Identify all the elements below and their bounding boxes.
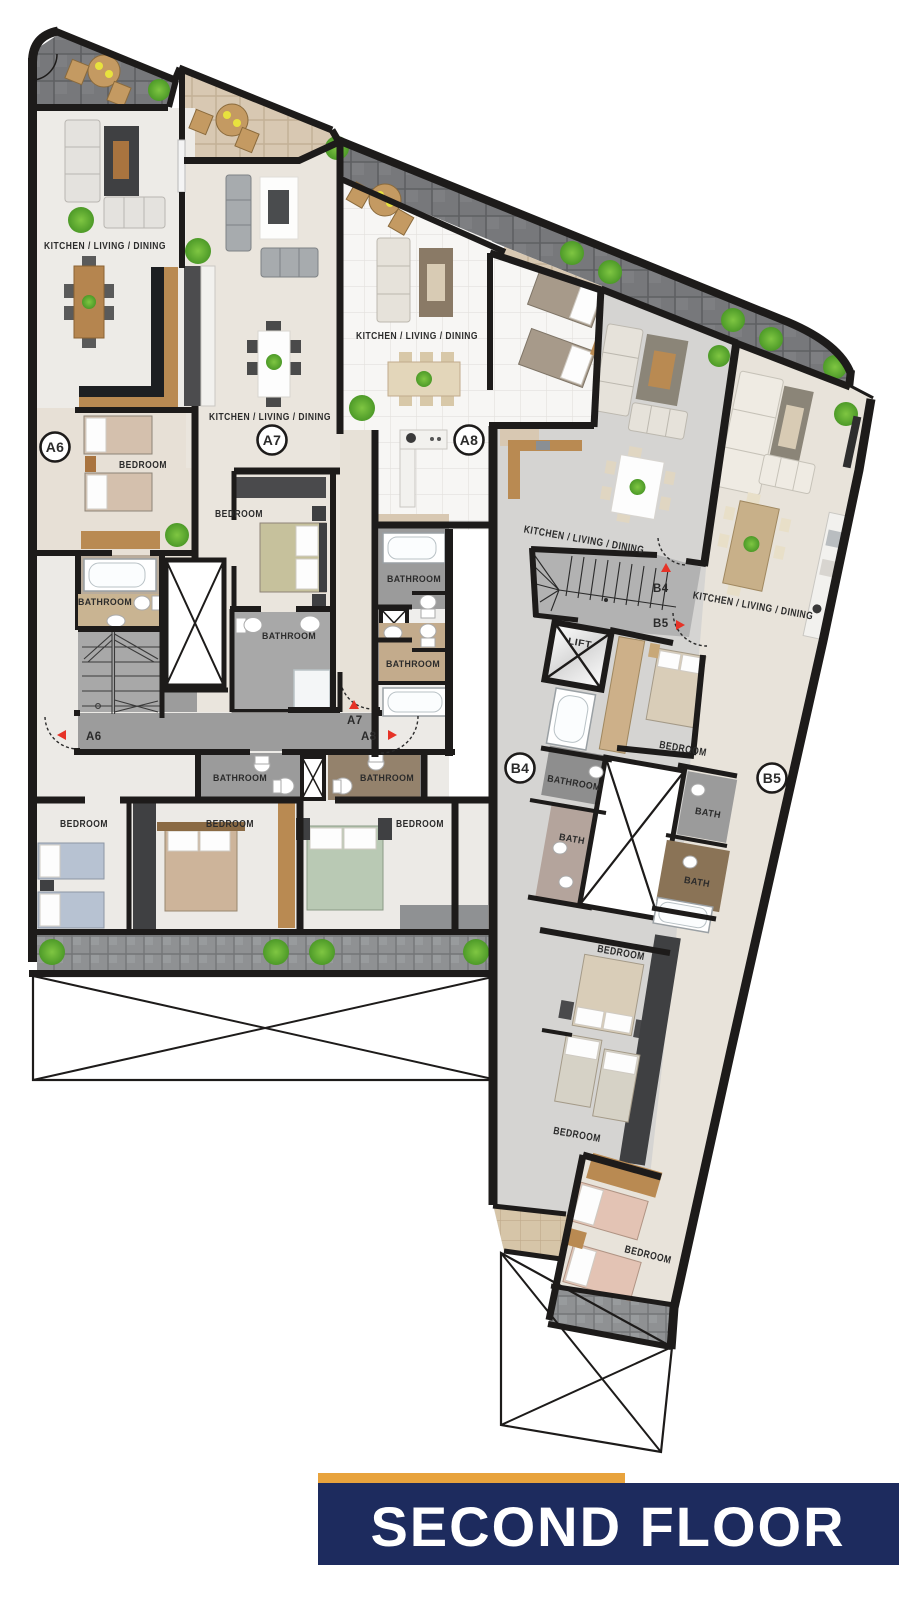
svg-text:SECOND FLOOR: SECOND FLOOR bbox=[370, 1495, 845, 1558]
svg-text:BATHROOM: BATHROOM bbox=[360, 773, 414, 784]
svg-text:BEDROOM: BEDROOM bbox=[215, 508, 263, 520]
svg-text:BATHROOM: BATHROOM bbox=[386, 659, 440, 670]
svg-text:KITCHEN / LIVING / DINING: KITCHEN / LIVING / DINING bbox=[356, 330, 478, 342]
svg-text:A7: A7 bbox=[263, 432, 282, 448]
svg-text:BATHROOM: BATHROOM bbox=[387, 574, 441, 585]
svg-text:BATHROOM: BATHROOM bbox=[213, 773, 267, 784]
svg-text:A6: A6 bbox=[46, 439, 65, 455]
svg-text:BEDROOM: BEDROOM bbox=[119, 459, 167, 471]
svg-text:BEDROOM: BEDROOM bbox=[60, 818, 108, 830]
svg-text:BEDROOM: BEDROOM bbox=[206, 818, 254, 830]
svg-text:B5: B5 bbox=[763, 770, 782, 786]
svg-text:KITCHEN / LIVING / DINING: KITCHEN / LIVING / DINING bbox=[44, 240, 166, 252]
svg-text:B4: B4 bbox=[653, 583, 669, 595]
svg-text:BEDROOM: BEDROOM bbox=[396, 818, 444, 830]
svg-text:A6: A6 bbox=[86, 731, 102, 743]
svg-text:B4: B4 bbox=[511, 760, 530, 776]
svg-text:KITCHEN / LIVING / DINING: KITCHEN / LIVING / DINING bbox=[209, 411, 331, 423]
svg-text:B5: B5 bbox=[653, 618, 669, 630]
svg-text:A8: A8 bbox=[361, 731, 377, 743]
svg-text:BATHROOM: BATHROOM bbox=[78, 597, 132, 608]
svg-text:BATHROOM: BATHROOM bbox=[262, 631, 316, 642]
svg-text:A7: A7 bbox=[347, 715, 363, 727]
svg-text:A8: A8 bbox=[460, 432, 479, 448]
